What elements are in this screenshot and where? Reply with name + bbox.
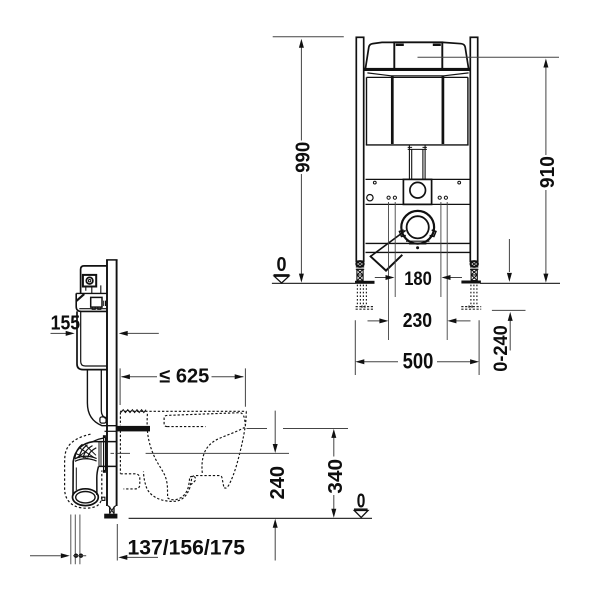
svg-text:≤ 625: ≤ 625 xyxy=(159,366,209,388)
svg-text:155: 155 xyxy=(51,312,81,334)
svg-text:910: 910 xyxy=(537,156,559,188)
svg-text:990: 990 xyxy=(293,142,315,173)
svg-text:0: 0 xyxy=(277,254,287,276)
svg-text:240: 240 xyxy=(267,466,289,500)
svg-text:0: 0 xyxy=(357,491,366,513)
svg-text:340: 340 xyxy=(325,459,347,494)
svg-text:180: 180 xyxy=(404,269,432,290)
svg-text:500: 500 xyxy=(403,348,434,373)
svg-text:230: 230 xyxy=(403,310,432,332)
svg-text:0-240: 0-240 xyxy=(491,325,512,372)
svg-text:137/156/175: 137/156/175 xyxy=(128,537,246,560)
